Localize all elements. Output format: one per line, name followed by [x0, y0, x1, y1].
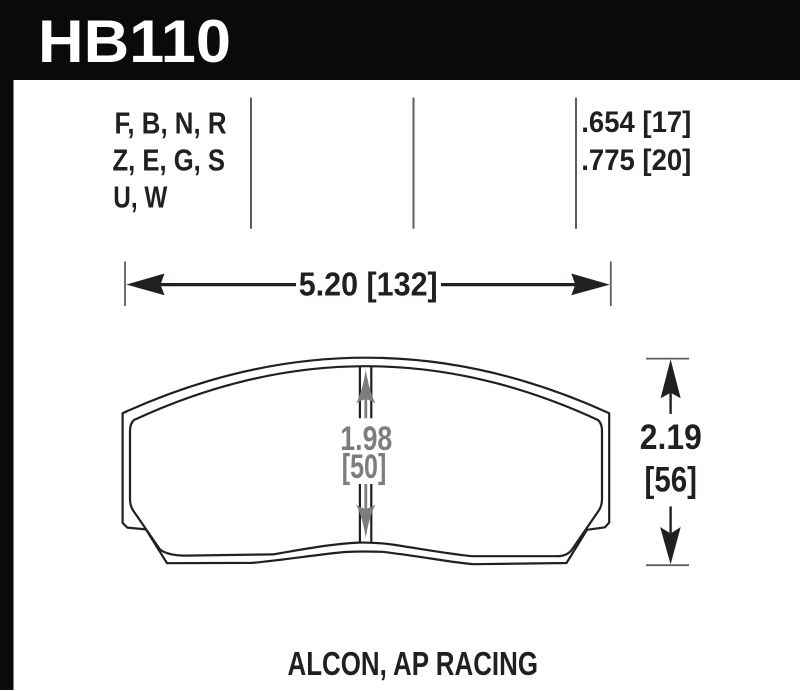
svg-text:[50]: [50] [342, 448, 387, 486]
svg-text:5.20 [132]: 5.20 [132] [299, 266, 438, 303]
svg-text:U, W: U, W [113, 179, 168, 214]
svg-text:Z, E, G, S: Z, E, G, S [113, 143, 226, 178]
svg-text:F, B, N, R: F, B, N, R [115, 106, 227, 141]
svg-text:.654 [17]: .654 [17] [581, 106, 691, 139]
svg-text:.775 [20]: .775 [20] [581, 144, 691, 177]
svg-text:ALCON, AP RACING: ALCON, AP RACING [288, 646, 539, 683]
svg-text:[56]: [56] [645, 461, 698, 500]
svg-text:2.19: 2.19 [640, 418, 702, 457]
svg-text:HB110: HB110 [38, 7, 231, 75]
